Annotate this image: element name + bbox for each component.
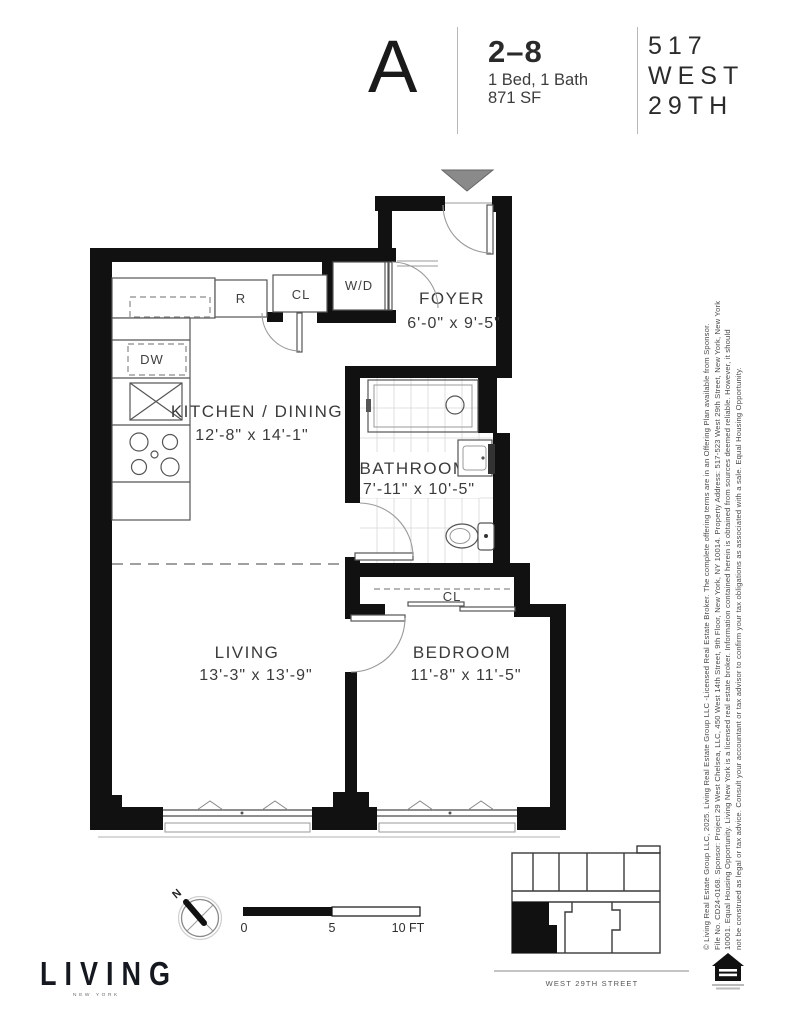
- scale-10: 10 FT: [392, 921, 425, 935]
- bedroom-door-leaf: [351, 615, 405, 621]
- foyer: FOYER 6'-0" x 9'-5": [397, 203, 501, 332]
- bathroom: BATHROOM 7'-11" x 10'-5": [355, 380, 495, 560]
- equal-housing-icon: [712, 953, 744, 990]
- toilet: [446, 523, 494, 550]
- kitchen-counter-top: [112, 278, 215, 318]
- kitchen: R CL DW KITCHEN / DINING 12'-8" x 14'-1": [112, 275, 345, 564]
- bathtub: [368, 380, 478, 432]
- bedroom-door-swing: [351, 618, 405, 672]
- living-dims: 13'-3" x 13'-9": [199, 667, 312, 684]
- legal-line: not be construed as legal or tax advice.…: [734, 226, 745, 950]
- refrigerator-label: R: [236, 291, 246, 306]
- tub-drain: [446, 396, 464, 414]
- bath-door-swing: [360, 503, 413, 556]
- floor-plan-sheet: { "header": { "unit_letter": "A", "floor…: [0, 0, 800, 1036]
- compass-needle: [186, 902, 204, 923]
- street-label: WEST 29TH STREET: [546, 979, 639, 988]
- foyer-dims: 6'-0" x 9'-5": [407, 315, 501, 332]
- washer-dryer-label: W/D: [345, 278, 373, 293]
- living-logo: LIVING: [40, 958, 178, 991]
- sliding-door-panel: [460, 607, 515, 611]
- legal-disclaimer: © Living Real Estate Group LLC, 2025. Li…: [702, 226, 746, 950]
- scale-bar: 0 5 10 FT: [241, 907, 425, 935]
- tub-faucet: [366, 399, 371, 412]
- bedroom-label: BEDROOM: [413, 643, 511, 662]
- kitchen-dims: 12'-8" x 14'-1": [195, 427, 308, 444]
- dishwasher-label: DW: [140, 352, 164, 367]
- living-logo-subtext: NEW YORK: [73, 993, 120, 998]
- compass-north-label: N: [170, 887, 184, 901]
- key-plan: WEST 29TH STREET: [494, 846, 689, 988]
- kitchen-closet-label: CL: [292, 287, 311, 302]
- floor-plan: FOYER 6'-0" x 9'-5" W/D R CL DW: [0, 0, 800, 1036]
- key-plan-unit-highlight: [512, 902, 557, 953]
- entry-door-swing: [443, 205, 491, 253]
- bedroom: BEDROOM 11'-8" x 11'-5": [351, 615, 522, 684]
- closet-door-leaf: [297, 313, 302, 352]
- legal-line: 10001. Equal Housing Opportunity. Living…: [723, 226, 734, 950]
- living-room: LIVING 13'-3" x 13'-9": [199, 643, 312, 684]
- sliding-door-panel: [408, 602, 464, 606]
- legal-line: © Living Real Estate Group LLC, 2025. Li…: [702, 226, 713, 950]
- scale-0: 0: [241, 921, 248, 935]
- bedroom-closet: CL: [374, 589, 515, 611]
- compass: N: [170, 887, 221, 940]
- legal-line: File No. CD24-0168. Sponsor: Project 29 …: [713, 226, 724, 950]
- bedroom-dims: 11'-8" x 11'-5": [410, 667, 521, 684]
- kitchen-label: KITCHEN / DINING: [171, 402, 343, 421]
- bathroom-dims: 7'-11" x 10'-5": [363, 481, 475, 498]
- living-label: LIVING: [215, 643, 280, 662]
- vanity-side: [488, 444, 495, 474]
- scale-5: 5: [329, 921, 336, 935]
- entry-arrow-icon: [442, 170, 493, 191]
- bath-door-leaf: [355, 553, 413, 560]
- foyer-label: FOYER: [419, 289, 485, 308]
- bathroom-label: BATHROOM: [360, 459, 469, 478]
- entry-door-leaf: [487, 205, 493, 254]
